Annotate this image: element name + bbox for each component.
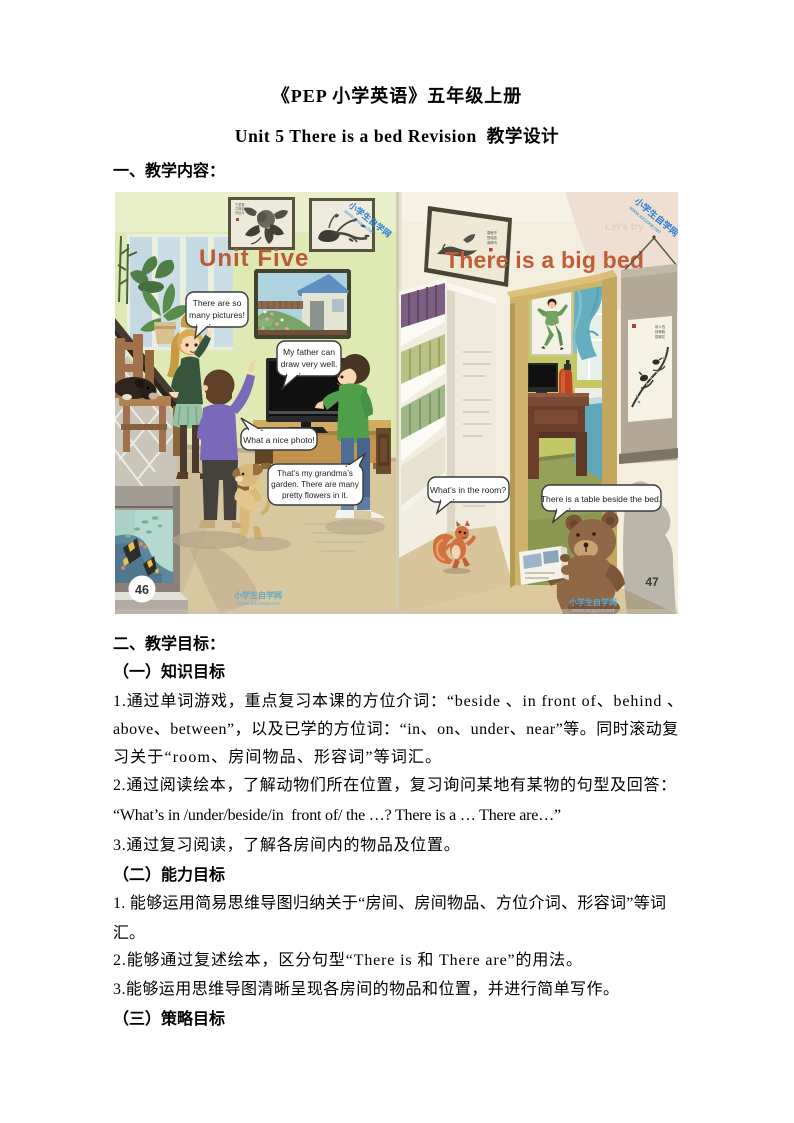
- svg-text:That’s my grandma’s: That’s my grandma’s: [277, 469, 353, 478]
- svg-text:故人西: 故人西: [655, 324, 666, 329]
- svg-text:46: 46: [135, 583, 149, 597]
- svg-text:There is a table beside the be: There is a table beside the bed.: [541, 494, 661, 504]
- svg-text:There are so: There are so: [193, 298, 242, 308]
- svg-text:many pictures!: many pictures!: [189, 310, 245, 320]
- svg-text:小学生自学网: 小学生自学网: [233, 590, 282, 600]
- svg-text:pretty flowers in it.: pretty flowers in it.: [282, 491, 348, 500]
- svg-text:觉晓处: 觉晓处: [487, 235, 498, 240]
- svg-text:What’s in the room?: What’s in the room?: [430, 485, 506, 495]
- svg-text:What a nice photo!: What a nice photo!: [243, 435, 315, 445]
- svg-text:draw very well.: draw very well.: [281, 359, 338, 369]
- svg-text:楼烟花: 楼烟花: [655, 334, 666, 339]
- svg-text:garden. There are many: garden. There are many: [271, 480, 360, 489]
- svg-text:47: 47: [645, 575, 659, 589]
- svg-text:春眠不: 春眠不: [487, 230, 498, 235]
- svg-text:辞黄鹤: 辞黄鹤: [655, 329, 666, 334]
- svg-text:There is a big bed: There is a big bed: [445, 247, 644, 273]
- svg-text:www.xxszxw.net: www.xxszxw.net: [236, 601, 280, 607]
- svg-text:小学生自学网: 小学生自学网: [568, 597, 617, 607]
- svg-text:清秋月: 清秋月: [235, 210, 245, 215]
- svg-text:Unit Five: Unit Five: [199, 245, 309, 272]
- svg-text:Let’s try: Let’s try: [605, 222, 644, 233]
- svg-text:闻啼鸟: 闻啼鸟: [487, 240, 498, 245]
- svg-text:My father can: My father can: [283, 347, 335, 357]
